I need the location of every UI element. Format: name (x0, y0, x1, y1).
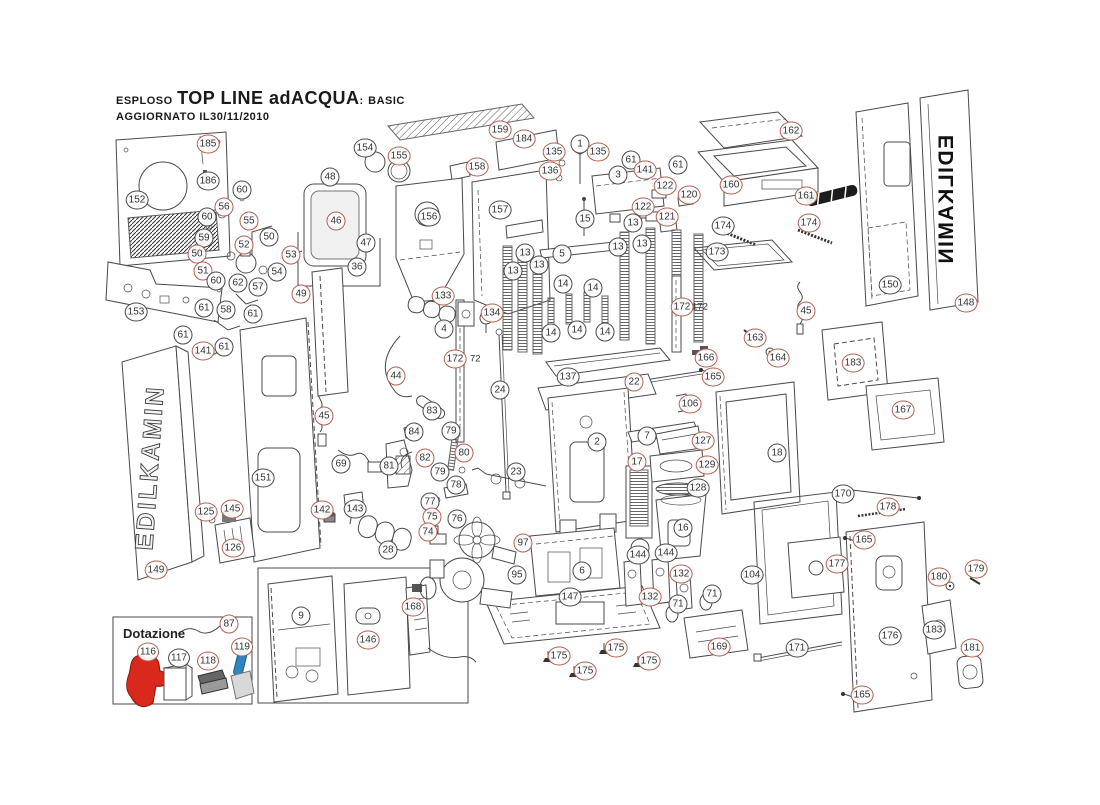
callout-153: 153 (125, 303, 148, 322)
callout-74: 74 (419, 523, 438, 542)
callout-132: 132 (639, 588, 662, 607)
callout-173: 173 (706, 243, 729, 262)
callout-14: 14 (584, 279, 603, 298)
callout-132: 132 (670, 565, 693, 584)
callout-2: 2 (588, 433, 607, 452)
dotazione-label: Dotazione (123, 626, 185, 641)
callout-151: 151 (252, 469, 275, 488)
callout-80: 80 (455, 444, 474, 463)
callout-121: 121 (656, 208, 679, 227)
callout-13: 13 (609, 238, 628, 257)
callout-82: 82 (416, 449, 435, 468)
callout-175: 175 (548, 647, 571, 666)
drawing-inner-panel-151 (240, 318, 321, 562)
callout-183: 183 (842, 354, 865, 373)
callout-71: 71 (703, 585, 722, 604)
callout-167: 167 (892, 401, 915, 420)
callout-7: 7 (638, 427, 657, 446)
callout-160: 160 (720, 176, 743, 195)
brand-right-text: EDILKAMIN (935, 135, 958, 265)
part-tag-72: 72 (470, 354, 481, 365)
callout-170: 170 (832, 485, 855, 504)
callout-55: 55 (240, 212, 259, 231)
drawing-volute-95 (420, 558, 512, 608)
callout-14: 14 (542, 324, 561, 343)
callout-47: 47 (357, 234, 376, 253)
callout-172: 172 (671, 298, 694, 317)
drawing-bracket-36 (312, 268, 348, 396)
callout-146: 146 (357, 631, 380, 650)
callout-15: 15 (576, 210, 595, 229)
callout-14: 14 (596, 323, 615, 342)
callout-9: 9 (292, 607, 311, 626)
callout-57: 57 (249, 278, 268, 297)
callout-133: 133 (432, 287, 455, 306)
callout-36: 36 (348, 258, 367, 277)
callout-127: 127 (692, 432, 715, 451)
title-prefix: ESPLOSO (116, 95, 173, 107)
drawing-grill-159 (388, 104, 534, 140)
callout-61: 61 (244, 305, 263, 324)
callout-164: 164 (767, 349, 790, 368)
callout-69: 69 (332, 455, 351, 474)
callout-142: 142 (311, 501, 334, 520)
callout-13: 13 (504, 262, 523, 281)
callout-56: 56 (215, 198, 234, 217)
callout-81: 81 (380, 457, 399, 476)
callout-97: 97 (514, 534, 533, 553)
callout-166: 166 (695, 349, 718, 368)
callout-14: 14 (568, 321, 587, 340)
drawing-part-118 (198, 670, 228, 694)
callout-163: 163 (744, 329, 767, 348)
drawing-door-frame-18 (716, 382, 800, 514)
callout-175: 175 (605, 639, 628, 658)
callout-61: 61 (669, 156, 688, 175)
drawing-panel-9 (268, 576, 338, 702)
callout-104: 104 (741, 566, 764, 585)
callout-168: 168 (402, 598, 425, 617)
drawing-auger-17 (626, 466, 652, 557)
callout-78: 78 (447, 476, 466, 495)
callout-147: 147 (559, 588, 582, 607)
callout-137: 137 (557, 368, 580, 387)
callout-165: 165 (853, 531, 876, 550)
callout-179: 179 (965, 560, 988, 579)
callout-84: 84 (405, 423, 424, 442)
callout-135: 135 (587, 143, 610, 162)
exploded-parts-diagram: EDILKAMIN (0, 0, 1100, 800)
callout-171: 171 (786, 639, 809, 658)
callout-48: 48 (321, 168, 340, 187)
callout-6: 6 (573, 562, 592, 581)
callout-116: 116 (137, 643, 159, 662)
callout-150: 150 (879, 276, 902, 295)
callout-95: 95 (508, 566, 527, 585)
title-sep: : (360, 95, 364, 107)
callout-141: 141 (634, 161, 657, 180)
callout-106: 106 (679, 395, 702, 414)
callout-178: 178 (877, 498, 900, 517)
callout-119: 119 (231, 638, 253, 657)
callout-52: 52 (235, 236, 254, 255)
callout-120: 120 (678, 186, 701, 205)
callout-83: 83 (423, 402, 442, 421)
callout-169: 169 (708, 638, 731, 657)
callout-3: 3 (609, 166, 628, 185)
callout-13: 13 (624, 214, 643, 233)
title-updated: AGGIORNATO IL30/11/2010 (116, 111, 405, 123)
callout-60: 60 (207, 272, 226, 291)
callout-60: 60 (198, 208, 217, 227)
drawing-door-176 (846, 522, 932, 712)
callout-165: 165 (702, 368, 725, 387)
drawing-bar-5 (540, 242, 616, 258)
drawing-side-panel-149: EDILKAMIN (122, 346, 204, 580)
callout-79: 79 (431, 463, 450, 482)
callout-128: 128 (687, 479, 710, 498)
callout-5: 5 (553, 245, 572, 264)
callout-175: 175 (638, 652, 661, 671)
callout-44: 44 (387, 367, 406, 386)
callout-54: 54 (268, 263, 287, 282)
drawing-panel-148: EDILKAMIN (920, 90, 978, 310)
drawing-manual-117 (164, 664, 192, 700)
callout-122: 122 (654, 177, 677, 196)
callout-45: 45 (797, 302, 816, 321)
callout-174: 174 (712, 217, 735, 236)
callout-28: 28 (379, 541, 398, 560)
callout-16: 16 (674, 519, 693, 538)
callout-162: 162 (780, 122, 803, 141)
callout-144: 144 (627, 546, 650, 565)
callout-79: 79 (442, 422, 461, 441)
callout-129: 129 (696, 456, 719, 475)
callout-125: 125 (195, 503, 218, 522)
callout-159: 159 (489, 121, 512, 140)
callout-145: 145 (221, 500, 244, 519)
callout-71: 71 (669, 595, 688, 614)
callout-180: 180 (928, 568, 951, 587)
callout-185: 185 (197, 135, 220, 154)
callout-118: 118 (197, 652, 219, 671)
callout-143: 143 (344, 500, 367, 519)
callout-87: 87 (220, 615, 239, 634)
callout-62: 62 (229, 274, 248, 293)
callout-141: 141 (192, 342, 215, 361)
part-tag-172: 172 (692, 302, 708, 313)
callout-49: 49 (292, 285, 311, 304)
callout-23: 23 (507, 463, 526, 482)
drawing-screws-174 (724, 230, 832, 245)
drawing-drawer-6 (530, 528, 620, 596)
callout-53: 53 (282, 246, 301, 265)
callout-60: 60 (233, 181, 252, 200)
drawing-glove-116 (127, 655, 168, 706)
title-name: TOP LINE adACQUA (177, 88, 359, 108)
callout-144: 144 (655, 544, 678, 563)
callout-174: 174 (798, 214, 821, 233)
callout-148: 148 (955, 294, 978, 313)
callout-61: 61 (195, 299, 214, 318)
callout-13: 13 (633, 235, 652, 254)
callout-58: 58 (217, 301, 236, 320)
callout-157: 157 (489, 201, 512, 220)
callout-61: 61 (174, 326, 193, 345)
callout-134: 134 (481, 304, 504, 323)
callout-18: 18 (768, 444, 787, 463)
callout-135: 135 (543, 143, 566, 162)
title-variant: BASIC (368, 95, 405, 107)
callout-155: 155 (388, 147, 411, 166)
callout-61: 61 (215, 338, 234, 357)
callout-172: 172 (444, 350, 467, 369)
callout-4: 4 (435, 320, 454, 339)
callout-136: 136 (539, 162, 562, 181)
callout-161: 161 (795, 187, 818, 206)
callout-76: 76 (448, 510, 467, 529)
callout-158: 158 (466, 158, 489, 177)
callout-154: 154 (354, 139, 377, 158)
callout-184: 184 (513, 130, 536, 149)
callout-24: 24 (491, 381, 510, 400)
callout-126: 126 (222, 539, 245, 558)
callout-13: 13 (530, 256, 549, 275)
callout-183: 183 (923, 621, 946, 640)
callout-14: 14 (554, 275, 573, 294)
callout-117: 117 (168, 649, 190, 668)
callout-177: 177 (826, 555, 849, 574)
drawing-hopper-156 (396, 178, 464, 302)
callout-22: 22 (625, 373, 644, 392)
callout-156: 156 (418, 208, 441, 227)
callout-165: 165 (851, 686, 874, 705)
callout-175: 175 (574, 662, 597, 681)
callout-45: 45 (315, 407, 334, 426)
callout-17: 17 (628, 453, 647, 472)
callout-176: 176 (879, 627, 902, 646)
title-block: ESPLOSO TOP LINE adACQUA: BASIC AGGIORNA… (116, 88, 405, 123)
callout-149: 149 (145, 561, 168, 580)
callout-50: 50 (260, 228, 279, 247)
callout-46: 46 (327, 212, 346, 231)
callout-181: 181 (961, 639, 984, 658)
callout-186: 186 (197, 172, 220, 191)
callout-152: 152 (126, 191, 149, 210)
